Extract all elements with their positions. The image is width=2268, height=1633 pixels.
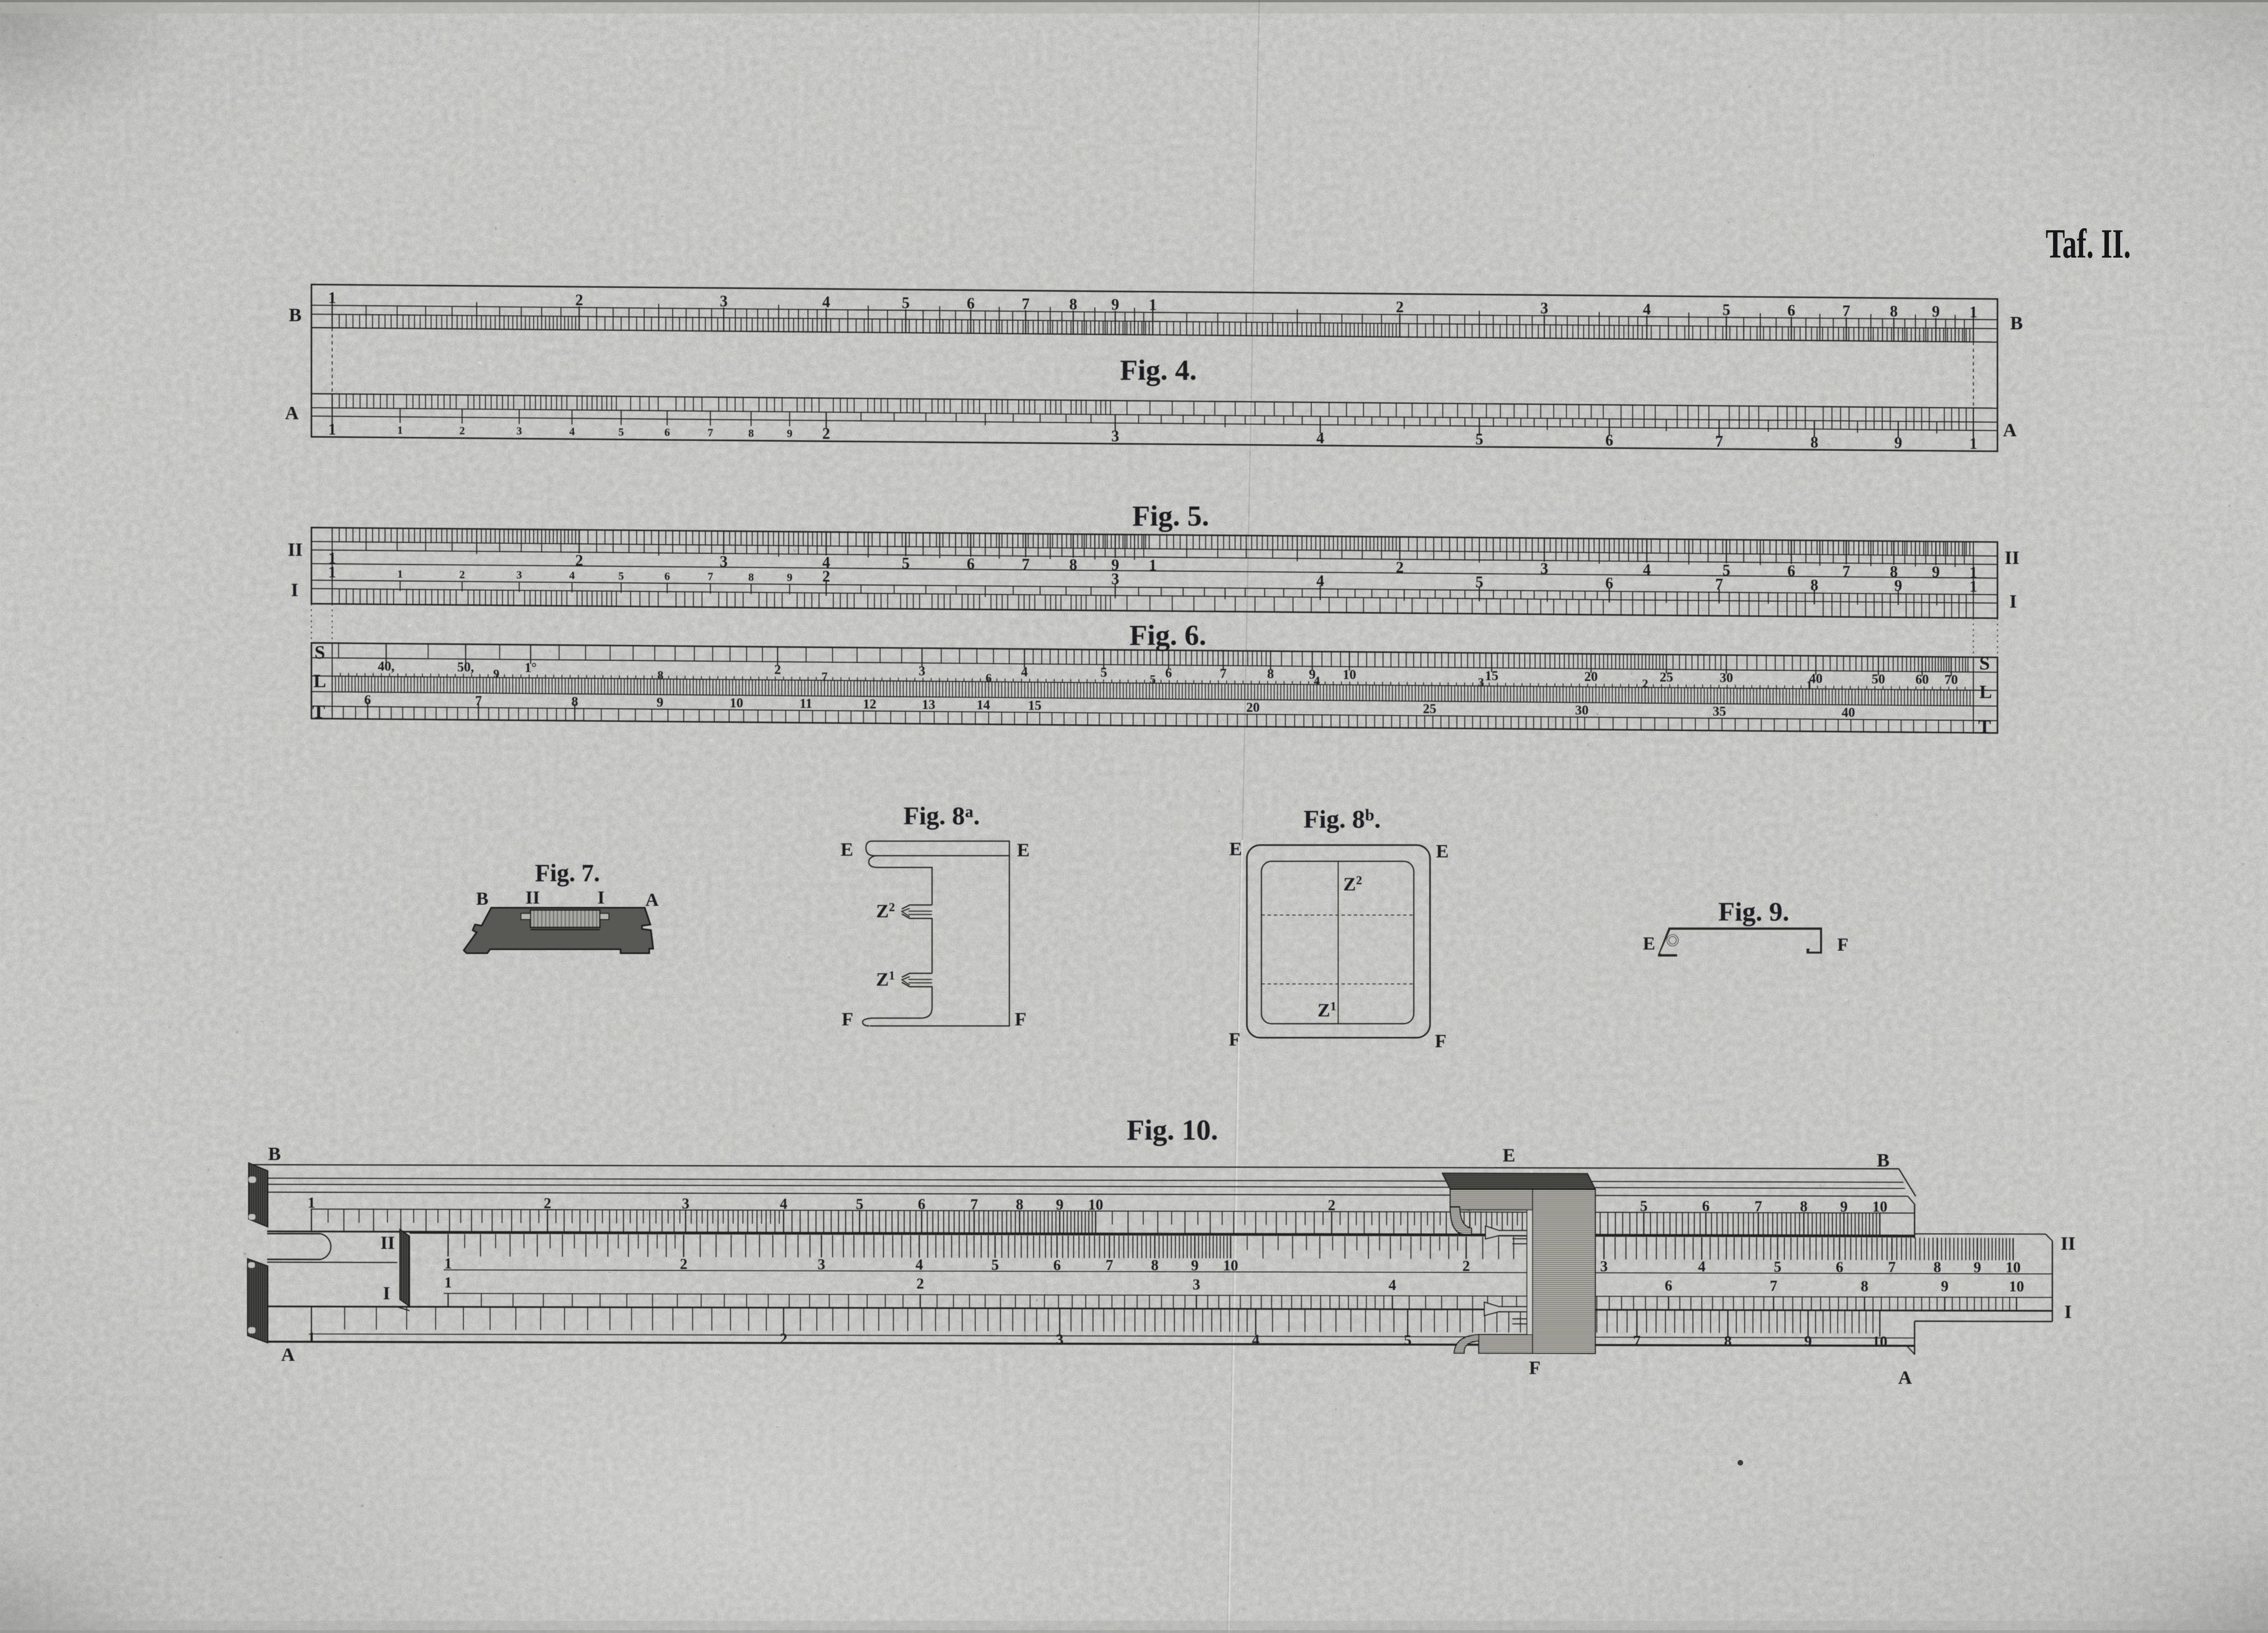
- svg-text:7: 7: [970, 1196, 978, 1212]
- svg-text:L: L: [314, 671, 327, 692]
- svg-text:3: 3: [818, 1256, 826, 1273]
- svg-text:40,: 40,: [378, 660, 394, 674]
- svg-text:F: F: [1229, 1029, 1241, 1050]
- svg-text:2: 2: [680, 1256, 688, 1272]
- svg-text:1: 1: [328, 290, 336, 307]
- svg-text:2: 2: [1396, 299, 1404, 316]
- svg-text:F: F: [1435, 1031, 1447, 1052]
- svg-text:Fig. 5.: Fig. 5.: [1132, 500, 1209, 532]
- svg-text:4: 4: [1698, 1258, 1706, 1275]
- svg-text:6: 6: [1605, 432, 1613, 450]
- svg-text:Fig. 9.: Fig. 9.: [1719, 897, 1790, 927]
- svg-text:15: 15: [1028, 699, 1041, 713]
- svg-text:A: A: [1898, 1368, 1912, 1388]
- svg-text:9: 9: [1804, 1333, 1812, 1350]
- svg-text:25: 25: [1660, 670, 1673, 685]
- svg-text:I: I: [2009, 591, 2016, 612]
- svg-text:4: 4: [1252, 1332, 1260, 1349]
- svg-text:8: 8: [1016, 1196, 1024, 1213]
- svg-text:9: 9: [656, 696, 663, 710]
- svg-text:10: 10: [2006, 1259, 2021, 1276]
- svg-text:4: 4: [1316, 430, 1324, 447]
- svg-text:Fig. 6.: Fig. 6.: [1129, 619, 1206, 651]
- svg-text:1: 1: [444, 1255, 452, 1272]
- svg-text:2: 2: [575, 292, 583, 309]
- svg-text:6: 6: [1787, 302, 1795, 320]
- svg-text:A: A: [2003, 420, 2017, 441]
- svg-text:3: 3: [1540, 561, 1548, 578]
- svg-text:2: 2: [780, 1331, 788, 1347]
- svg-text:5: 5: [1774, 1258, 1782, 1275]
- svg-text:5: 5: [1475, 574, 1483, 591]
- svg-text:B: B: [476, 889, 488, 909]
- svg-text:5: 5: [902, 555, 910, 572]
- svg-text:5: 5: [1475, 431, 1483, 449]
- svg-text:II: II: [288, 540, 302, 561]
- svg-text:7: 7: [1633, 1332, 1641, 1349]
- svg-text:I: I: [291, 580, 298, 601]
- svg-text:9: 9: [787, 571, 793, 584]
- svg-text:11: 11: [799, 697, 812, 711]
- svg-text:7: 7: [1022, 296, 1030, 313]
- svg-text:13: 13: [922, 698, 935, 712]
- svg-text:8: 8: [1810, 577, 1818, 594]
- svg-text:5: 5: [618, 570, 624, 582]
- svg-text:Fig. 10.: Fig. 10.: [1126, 1114, 1218, 1146]
- svg-text:5: 5: [1101, 666, 1107, 680]
- svg-text:3: 3: [516, 425, 522, 437]
- svg-text:2: 2: [1328, 1197, 1336, 1214]
- svg-text:3: 3: [516, 569, 522, 581]
- svg-text:3: 3: [1111, 428, 1119, 445]
- svg-text:60: 60: [1916, 673, 1929, 687]
- svg-text:3: 3: [1111, 571, 1119, 588]
- svg-text:8: 8: [1724, 1333, 1732, 1350]
- svg-text:6: 6: [1165, 666, 1172, 681]
- svg-text:40: 40: [1842, 706, 1855, 720]
- svg-text:8: 8: [1810, 434, 1818, 451]
- svg-text:1: 1: [308, 1194, 315, 1211]
- svg-text:E: E: [1017, 840, 1030, 861]
- svg-text:3: 3: [720, 553, 728, 571]
- svg-text:Fig. 7.: Fig. 7.: [535, 859, 600, 887]
- svg-text:35: 35: [1713, 704, 1726, 719]
- svg-text:10: 10: [1088, 1196, 1103, 1213]
- svg-text:7: 7: [1715, 433, 1723, 450]
- svg-text:F: F: [1529, 1357, 1541, 1378]
- svg-text:6: 6: [664, 427, 670, 439]
- svg-text:B: B: [289, 305, 302, 326]
- svg-text:14: 14: [977, 698, 990, 713]
- svg-text:7: 7: [707, 571, 713, 583]
- svg-text:50,: 50,: [457, 660, 474, 675]
- svg-text:9: 9: [1894, 577, 1902, 595]
- svg-text:5: 5: [618, 426, 624, 438]
- svg-text:B: B: [2010, 313, 2023, 334]
- svg-text:9: 9: [1840, 1198, 1848, 1215]
- svg-text:4: 4: [1316, 572, 1324, 590]
- svg-text:9: 9: [1894, 435, 1902, 452]
- svg-text:8: 8: [1800, 1198, 1808, 1215]
- svg-text:1: 1: [1969, 304, 1977, 321]
- svg-text:1: 1: [328, 564, 336, 581]
- svg-text:6: 6: [967, 295, 975, 312]
- svg-text:2: 2: [1396, 559, 1404, 577]
- svg-text:7: 7: [1842, 302, 1850, 320]
- svg-text:20: 20: [1584, 670, 1598, 684]
- svg-text:4: 4: [1389, 1276, 1396, 1293]
- svg-text:25: 25: [1423, 702, 1436, 717]
- svg-text:T: T: [1978, 717, 1991, 738]
- svg-text:8: 8: [1151, 1257, 1159, 1273]
- svg-text:2: 2: [575, 552, 583, 570]
- svg-text:7: 7: [1220, 666, 1227, 681]
- svg-text:F: F: [842, 1009, 854, 1030]
- svg-text:2: 2: [459, 424, 465, 437]
- svg-text:I: I: [598, 888, 605, 908]
- svg-text:1: 1: [397, 568, 403, 580]
- svg-text:6: 6: [1702, 1198, 1710, 1215]
- svg-text:4: 4: [780, 1196, 788, 1212]
- svg-text:8: 8: [1069, 557, 1077, 574]
- svg-text:S: S: [315, 642, 325, 663]
- svg-text:Taf. II.: Taf. II.: [2046, 221, 2131, 267]
- svg-text:5: 5: [1640, 1197, 1648, 1214]
- svg-text:4: 4: [822, 294, 830, 311]
- svg-text:6: 6: [967, 556, 975, 573]
- svg-text:4: 4: [1643, 301, 1651, 318]
- svg-text:1: 1: [397, 424, 403, 436]
- svg-text:7: 7: [707, 427, 713, 439]
- svg-text:4: 4: [569, 570, 575, 582]
- svg-text:5: 5: [1722, 302, 1730, 319]
- svg-text:10: 10: [1873, 1198, 1888, 1215]
- svg-text:II: II: [525, 888, 540, 908]
- svg-text:4: 4: [1643, 561, 1651, 578]
- svg-text:6: 6: [918, 1196, 926, 1212]
- svg-text:1: 1: [1149, 297, 1157, 314]
- svg-text:E: E: [1503, 1145, 1516, 1166]
- svg-text:E: E: [841, 839, 854, 860]
- svg-text:2: 2: [916, 1275, 924, 1292]
- svg-text:20: 20: [1246, 701, 1260, 715]
- svg-text:II: II: [2005, 548, 2019, 568]
- svg-text:T: T: [313, 702, 325, 722]
- svg-text:F: F: [1837, 935, 1848, 955]
- svg-text:3: 3: [919, 664, 925, 679]
- svg-text:II: II: [2061, 1234, 2075, 1254]
- svg-text:2: 2: [544, 1195, 552, 1212]
- svg-text:6: 6: [1836, 1258, 1843, 1275]
- svg-text:9: 9: [1111, 296, 1119, 314]
- svg-text:7: 7: [1770, 1277, 1778, 1294]
- svg-text:6: 6: [1665, 1277, 1673, 1294]
- svg-text:15: 15: [1485, 669, 1498, 684]
- svg-text:9: 9: [1056, 1196, 1064, 1213]
- svg-text:3: 3: [1056, 1331, 1064, 1348]
- svg-text:5: 5: [1722, 562, 1730, 580]
- svg-text:2: 2: [1463, 1258, 1470, 1275]
- svg-text:II: II: [380, 1233, 395, 1253]
- svg-text:10: 10: [1873, 1333, 1888, 1350]
- svg-text:12: 12: [863, 697, 877, 712]
- svg-text:A: A: [281, 1345, 295, 1365]
- svg-text:3: 3: [1540, 300, 1548, 318]
- svg-text:7: 7: [1842, 563, 1850, 580]
- svg-text:B: B: [268, 1144, 281, 1165]
- svg-text:9: 9: [1932, 564, 1940, 581]
- svg-text:1: 1: [444, 1274, 452, 1291]
- svg-text:8: 8: [748, 571, 754, 584]
- svg-text:E: E: [1230, 839, 1242, 860]
- svg-text:5: 5: [1404, 1332, 1412, 1349]
- svg-text:7: 7: [1106, 1257, 1114, 1273]
- svg-text:10: 10: [1223, 1257, 1238, 1274]
- svg-text:10: 10: [2009, 1278, 2024, 1295]
- svg-text:6: 6: [664, 571, 670, 583]
- svg-text:8: 8: [1890, 303, 1898, 320]
- svg-text:8: 8: [1861, 1277, 1869, 1294]
- svg-text:Fig. 4.: Fig. 4.: [1120, 354, 1196, 386]
- svg-text:E: E: [1436, 841, 1449, 862]
- svg-text:9: 9: [1941, 1278, 1949, 1295]
- svg-text:7: 7: [1715, 576, 1723, 593]
- svg-text:6: 6: [1605, 575, 1613, 592]
- svg-text:50: 50: [1871, 673, 1885, 687]
- svg-text:B: B: [1877, 1150, 1890, 1171]
- svg-text:5: 5: [856, 1196, 864, 1212]
- svg-text:6: 6: [1787, 563, 1795, 580]
- svg-text:S: S: [1980, 654, 1990, 674]
- svg-text:8: 8: [1069, 296, 1077, 314]
- svg-text:3: 3: [682, 1195, 690, 1212]
- svg-text:5: 5: [902, 295, 910, 312]
- svg-text:9: 9: [1973, 1259, 1981, 1276]
- svg-text:9: 9: [787, 427, 793, 440]
- svg-text:F: F: [1015, 1009, 1027, 1030]
- svg-text:I: I: [383, 1284, 390, 1304]
- svg-text:4: 4: [915, 1256, 923, 1273]
- svg-text:70: 70: [1944, 673, 1958, 688]
- svg-text:7: 7: [1888, 1259, 1896, 1276]
- svg-text:8: 8: [1934, 1259, 1941, 1276]
- svg-text:9: 9: [1932, 304, 1940, 321]
- svg-text:30: 30: [1575, 703, 1589, 718]
- svg-text:1: 1: [328, 421, 336, 438]
- svg-text:1°: 1°: [524, 661, 537, 675]
- svg-text:6: 6: [1053, 1257, 1061, 1273]
- svg-text:4: 4: [569, 426, 575, 438]
- svg-text:7: 7: [1022, 556, 1030, 573]
- svg-text:1: 1: [1969, 578, 1977, 595]
- svg-text:5: 5: [991, 1257, 999, 1273]
- svg-text:2: 2: [774, 663, 781, 678]
- svg-text:1: 1: [1149, 557, 1157, 575]
- svg-text:A: A: [645, 890, 659, 911]
- svg-text:9: 9: [1191, 1257, 1199, 1273]
- svg-text:30: 30: [1720, 671, 1733, 685]
- svg-text:4: 4: [1021, 665, 1028, 679]
- svg-text:7: 7: [1754, 1198, 1762, 1215]
- svg-text:10: 10: [730, 696, 743, 711]
- svg-text:2: 2: [459, 568, 465, 581]
- svg-text:3: 3: [720, 293, 728, 310]
- svg-text:3: 3: [1600, 1258, 1608, 1275]
- svg-text:2: 2: [822, 568, 830, 586]
- svg-text:2: 2: [822, 426, 830, 443]
- svg-text:A: A: [285, 403, 299, 424]
- svg-text:1: 1: [1969, 435, 1977, 452]
- svg-text:I: I: [2064, 1302, 2071, 1323]
- svg-text:8: 8: [748, 427, 754, 440]
- svg-text:1: 1: [308, 1329, 315, 1346]
- svg-text:8: 8: [1267, 667, 1274, 682]
- svg-text:E: E: [1643, 934, 1655, 954]
- svg-text:L: L: [1980, 682, 1992, 703]
- svg-text:10: 10: [1343, 668, 1356, 682]
- svg-text:3: 3: [1193, 1276, 1200, 1293]
